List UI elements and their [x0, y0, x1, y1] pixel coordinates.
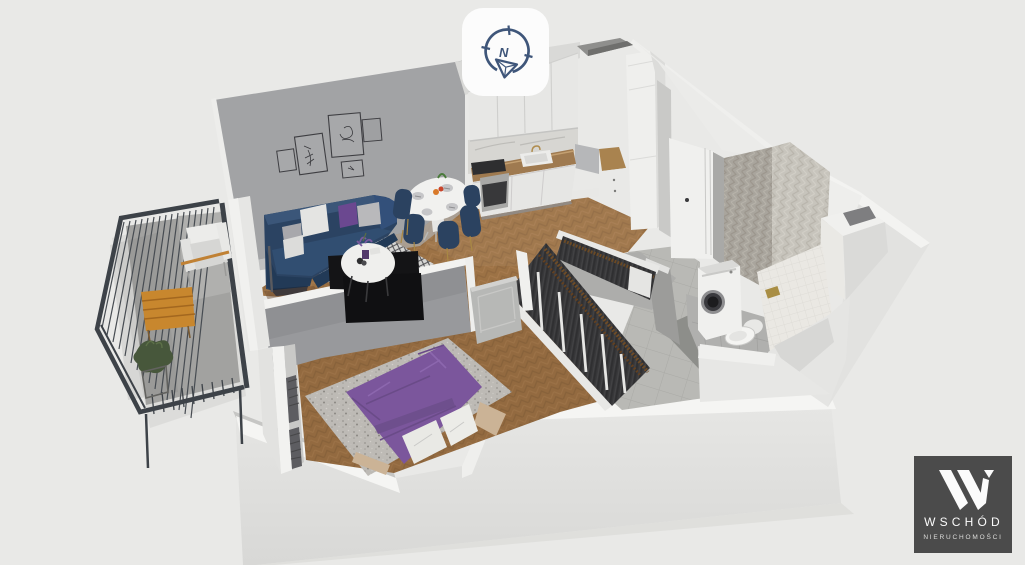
svg-text:WSCHÓD: WSCHÓD	[924, 514, 1004, 529]
svg-text:NIERUCHOMOŚCI: NIERUCHOMOŚCI	[923, 532, 1002, 541]
svg-text:N: N	[499, 45, 509, 60]
